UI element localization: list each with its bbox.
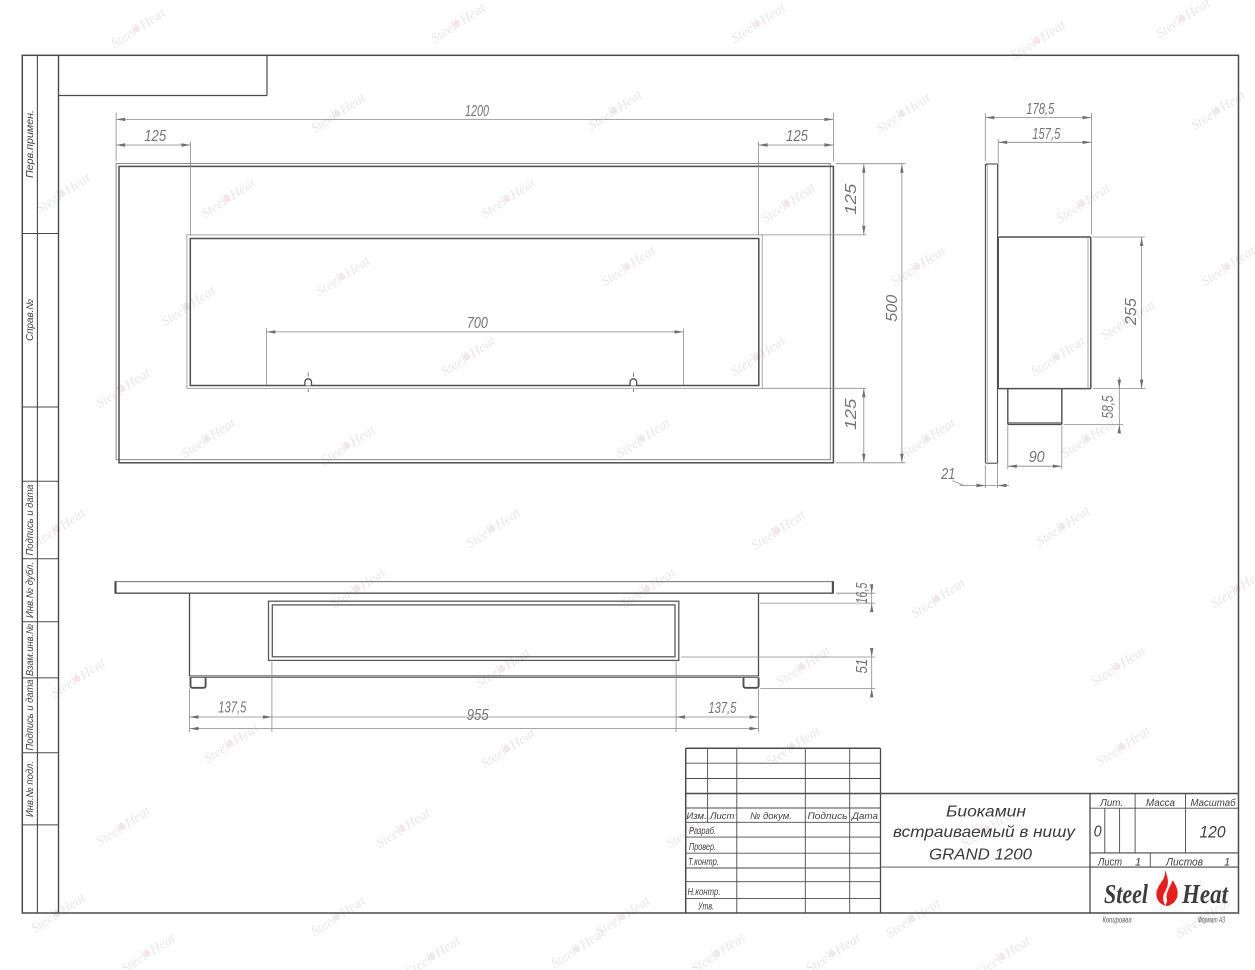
svg-text:700: 700 [467, 315, 488, 332]
svg-text:137,5: 137,5 [708, 700, 736, 717]
svg-text:Масштаб: Масштаб [1191, 798, 1236, 809]
svg-text:125: 125 [843, 398, 860, 429]
svg-text:125: 125 [786, 128, 808, 145]
svg-text:1: 1 [1224, 856, 1230, 868]
svg-text:Перв.примен.: Перв.примен. [25, 110, 36, 178]
svg-text:Справ.№: Справ.№ [25, 299, 36, 341]
svg-text:Разраб.: Разраб. [689, 826, 716, 837]
svg-text:0: 0 [1094, 824, 1102, 841]
svg-text:1: 1 [1135, 856, 1141, 868]
svg-text:Подпись и дата: Подпись и дата [25, 679, 36, 751]
svg-text:Heat: Heat [1181, 879, 1229, 909]
svg-text:встраиваемый в нишу: встраиваемый в нишу [893, 824, 1076, 841]
svg-text:Инв.№ подл.: Инв.№ подл. [25, 761, 36, 817]
svg-text:90: 90 [1029, 449, 1045, 466]
svg-text:Н.контр.: Н.контр. [688, 887, 721, 898]
svg-text:51: 51 [854, 659, 871, 674]
svg-text:Изм.: Изм. [686, 811, 706, 822]
svg-text:Биокамин: Биокамин [946, 804, 1026, 821]
svg-text:16,5: 16,5 [854, 582, 871, 603]
svg-text:58,5: 58,5 [1100, 395, 1117, 418]
svg-text:Инв.№ дубл.: Инв.№ дубл. [25, 562, 36, 618]
svg-text:120: 120 [1200, 824, 1227, 842]
svg-text:255: 255 [1123, 298, 1140, 326]
svg-text:Лист: Лист [1097, 856, 1122, 868]
svg-text:500: 500 [884, 294, 901, 321]
svg-text:Утв.: Утв. [697, 902, 714, 913]
svg-text:157,5: 157,5 [1032, 126, 1060, 143]
svg-text:Лист: Лист [709, 811, 735, 822]
svg-text:Провер.: Провер. [689, 842, 716, 853]
svg-text:1200: 1200 [465, 103, 489, 120]
svg-text:Листов: Листов [1165, 856, 1203, 868]
svg-text:Взам.инв.№: Взам.инв.№ [25, 624, 36, 676]
svg-text:955: 955 [467, 707, 489, 724]
svg-text:Steel: Steel [1104, 879, 1148, 909]
svg-text:178,5: 178,5 [1026, 101, 1054, 118]
svg-text:Т.контр.: Т.контр. [688, 857, 719, 868]
svg-text:GRAND 1200: GRAND 1200 [929, 847, 1032, 864]
svg-text:Подпись: Подпись [808, 811, 848, 822]
svg-text:125: 125 [144, 128, 166, 145]
svg-text:Масса: Масса [1146, 798, 1176, 809]
svg-text:Копировал: Копировал [1103, 915, 1132, 925]
svg-text:Лит.: Лит. [1099, 798, 1123, 809]
svg-text:21: 21 [940, 466, 955, 483]
svg-text:Формат А3: Формат А3 [1198, 915, 1225, 925]
svg-text:Дата: Дата [851, 811, 878, 822]
svg-text:125: 125 [843, 183, 860, 214]
svg-text:Подпись и дата: Подпись и дата [25, 484, 36, 556]
svg-text:№ докум.: № докум. [750, 811, 792, 822]
svg-text:137,5: 137,5 [218, 700, 246, 717]
